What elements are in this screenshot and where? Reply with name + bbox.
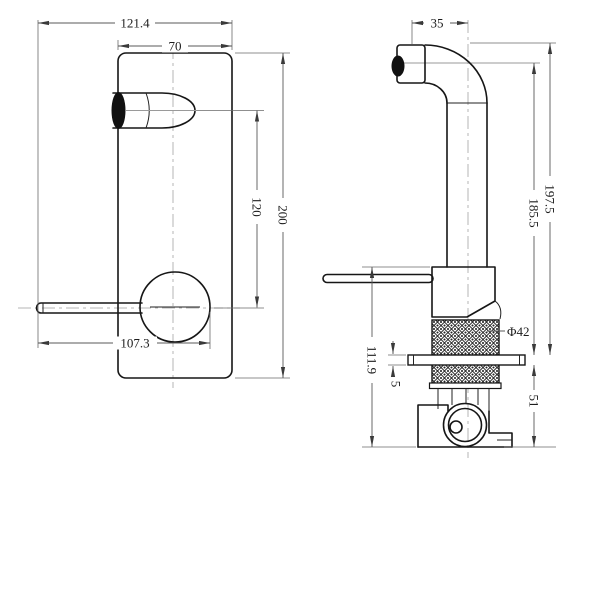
dim-plate-thickness-label: 5: [389, 381, 404, 388]
handle-side: [323, 267, 501, 319]
faucet-two-view-drawing: 121.4 70 200 120 107.3: [0, 0, 600, 600]
technical-drawing-page: 121.4 70 200 120 107.3: [0, 0, 600, 600]
front-view-dimensions: 121.4 70 200 120 107.3: [38, 16, 291, 379]
side-view-centerlines: [404, 20, 540, 458]
spout-front: [112, 92, 197, 129]
dim-spout-tip-offset-label: 35: [431, 16, 444, 31]
aerator-opening: [112, 92, 126, 129]
dim-plate-width-label: 70: [169, 39, 182, 54]
dim-handle-reach-label: 107.3: [120, 336, 149, 351]
dim-plate-height-label: 200: [276, 205, 291, 225]
handle-body: [432, 267, 495, 317]
handle-front: [37, 272, 211, 342]
sleeve-bottom-rim: [430, 383, 502, 389]
inlet-hole: [450, 421, 462, 433]
front-view: 121.4 70 200 120 107.3: [18, 16, 291, 389]
spout-side: [392, 45, 488, 267]
wall-flange: [408, 355, 525, 365]
dim-body-height-label: 111.9: [365, 346, 380, 374]
dim-depth-behind-wall-label: 51: [527, 395, 542, 408]
inlet-port-inner: [449, 409, 482, 442]
wall-plate-outline: [118, 53, 232, 378]
dim-height-to-outlet-label: 185.5: [527, 198, 542, 227]
aerator-opening-side: [392, 56, 405, 77]
dim-spout-to-handle-label: 120: [250, 197, 265, 217]
side-view: 35 197.5 185.5 111.9 5 51 Φ42: [323, 16, 558, 459]
handle-lever-side: [323, 275, 433, 283]
valve-body: [418, 389, 512, 448]
knurled-sleeve: [430, 320, 502, 389]
dim-overall-width-label: 121.4: [120, 16, 150, 31]
dim-trim-sleeve-diameter-label: Φ42: [507, 324, 530, 339]
dim-height-to-top-label: 197.5: [543, 184, 558, 213]
